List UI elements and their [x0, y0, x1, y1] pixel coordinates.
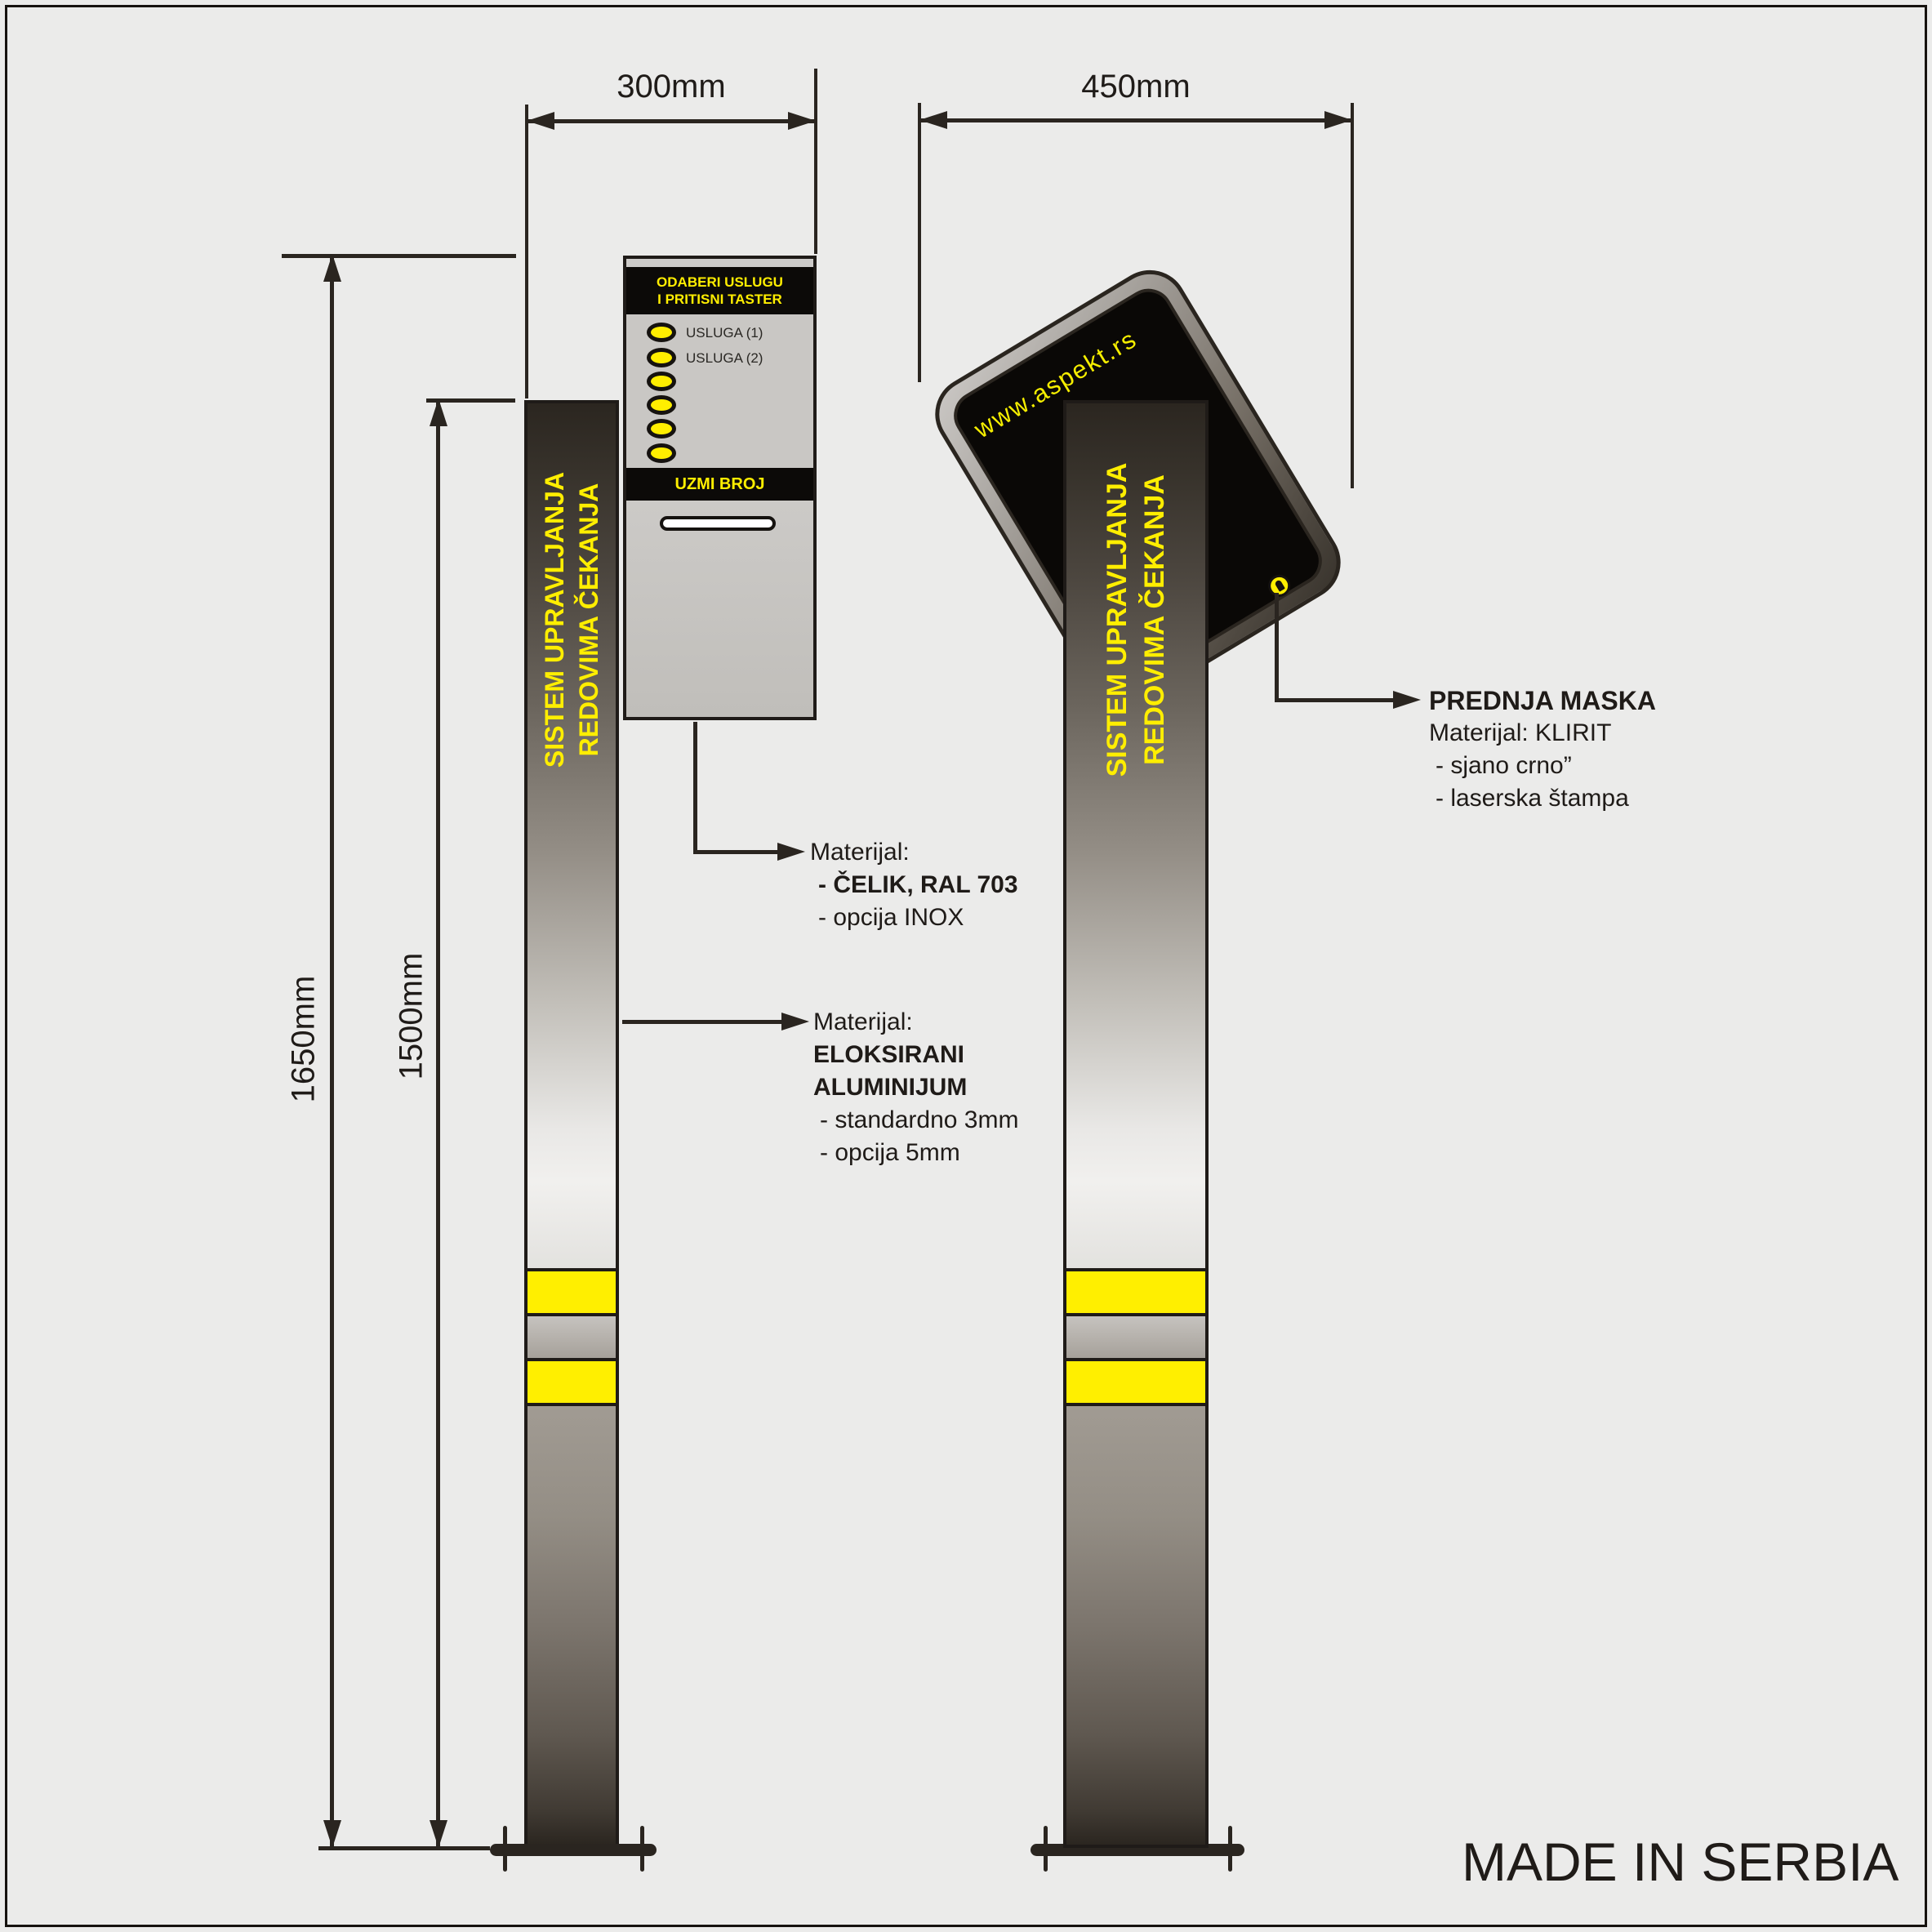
gray-band [528, 1316, 616, 1358]
pole-upper-section: SISTEM UPRAVLJANJA REDOVIMA ČEKANJA [528, 403, 616, 1268]
panel-button-area: USLUGA (1) USLUGA (2) [626, 314, 813, 468]
ground-extension-line [318, 1846, 490, 1850]
dim-450-label: 450mm [1054, 69, 1218, 105]
dim-450-extension-left [918, 103, 921, 382]
ticket-slot[interactable] [660, 516, 776, 531]
callout-steel-text: Materijal: - ČELIK, RAL 703 - opcija INO… [810, 836, 1018, 934]
anchor-bolt [1228, 1826, 1232, 1872]
callout-aluminium-line4: - opcija 5mm [813, 1137, 1018, 1169]
arrow-down-icon [430, 1820, 447, 1848]
pole-upper-section: SISTEM UPRAVLJANJA REDOVIMA ČEKANJA [1066, 403, 1205, 1268]
callout-mask-line1: Materijal: KLIRIT [1429, 717, 1656, 750]
arrow-right-icon [781, 1013, 809, 1031]
arrow-left-icon [527, 112, 554, 130]
service-button-3[interactable] [647, 372, 676, 391]
anchor-bolt [1044, 1826, 1048, 1872]
callout-mask-line3: - laserska štampa [1429, 782, 1656, 815]
yellow-band [528, 1268, 616, 1316]
callout-steel-line1: - ČELIK, RAL 703 [810, 869, 1018, 901]
pole-vertical-text: SISTEM UPRAVLJANJA REDOVIMA ČEKANJA [535, 456, 608, 783]
callout-mask-text: PREDNJA MASKA Materijal: KLIRIT - sjano … [1429, 684, 1656, 815]
technical-drawing-canvas: 1650mm 1500mm 300mm ODABERI USLUGU I PRI… [0, 0, 1932, 1932]
arrow-left-icon [919, 111, 947, 129]
callout-steel-title: Materijal: [810, 836, 1018, 869]
dim-1500-label: 1500mm [394, 935, 430, 1098]
callout-aluminium-line2: ALUMINIJUM [813, 1071, 1018, 1104]
made-in-serbia-text: MADE IN SERBIA [1462, 1831, 1899, 1893]
pole-text-line2: REDOVIMA ČEKANJA [1136, 474, 1173, 765]
arrow-right-icon [788, 112, 816, 130]
callout-aluminium-text: Materijal: ELOKSIRANI ALUMINIJUM - stand… [813, 1006, 1018, 1169]
pole-text-line2: REDOVIMA ČEKANJA [572, 483, 606, 757]
yellow-band [528, 1358, 616, 1406]
callout-mask-line-vertical [1275, 593, 1279, 702]
pole-lower-section [528, 1406, 616, 1845]
take-number-label: UZMI BROJ [675, 475, 765, 494]
arrow-right-icon [1324, 111, 1352, 129]
keyhole-notch [1274, 579, 1285, 591]
arrow-right-icon [777, 843, 805, 861]
panel-header-line2: I PRITISNI TASTER [626, 291, 813, 308]
ticket-panel: ODABERI USLUGU I PRITISNI TASTER USLUGA … [623, 256, 817, 720]
callout-steel-line-horizontal [693, 850, 781, 854]
pole-side-view: SISTEM UPRAVLJANJA REDOVIMA ČEKANJA [1063, 400, 1209, 1848]
panel-top-strip [626, 259, 813, 267]
service-button-1-label: USLUGA (1) [686, 325, 763, 341]
callout-steel-line2: - opcija INOX [810, 901, 1018, 934]
dim-300-extension-left [525, 105, 528, 398]
dim-450-line [919, 118, 1352, 122]
pole-lower-section [1066, 1406, 1205, 1845]
callout-aluminium-line3: - standardno 3mm [813, 1104, 1018, 1137]
anchor-bolt [640, 1826, 644, 1872]
dim-300-line [527, 119, 816, 123]
dim-300-label: 300mm [590, 69, 753, 105]
service-button-4[interactable] [647, 395, 676, 415]
dim-1500-extension-top [426, 398, 515, 403]
callout-aluminium-line [622, 1020, 786, 1024]
yellow-band [1066, 1268, 1205, 1316]
arrow-up-icon [323, 254, 341, 282]
dim-1650-line [330, 256, 334, 1848]
service-button-6[interactable] [647, 443, 676, 463]
dim-1650-extension-top [282, 254, 516, 258]
panel-header: ODABERI USLUGU I PRITISNI TASTER [626, 267, 813, 314]
base-plate [490, 1844, 657, 1856]
callout-steel-line-vertical [693, 722, 697, 854]
yellow-band [1066, 1358, 1205, 1406]
dim-300-extension-right [814, 69, 817, 254]
pole-front-view: SISTEM UPRAVLJANJA REDOVIMA ČEKANJA [524, 400, 619, 1848]
take-number-band: UZMI BROJ [626, 468, 813, 501]
service-button-2-label: USLUGA (2) [686, 350, 763, 367]
arrow-right-icon [1393, 691, 1421, 709]
pole-text-line1: SISTEM UPRAVLJANJA [1098, 463, 1136, 777]
callout-mask-line2: - sjano crno” [1429, 750, 1656, 782]
dim-1650-label: 1650mm [286, 958, 323, 1121]
arrow-up-icon [430, 398, 447, 426]
arrow-down-icon [323, 1820, 341, 1848]
callout-mask-line-horizontal [1275, 698, 1397, 702]
gray-band [1066, 1316, 1205, 1358]
pole-text-line1: SISTEM UPRAVLJANJA [537, 472, 572, 768]
service-button-2[interactable] [647, 348, 676, 367]
service-button-5[interactable] [647, 419, 676, 438]
dim-450-extension-right [1351, 103, 1354, 488]
service-button-1[interactable] [647, 323, 676, 342]
pole-vertical-text: SISTEM UPRAVLJANJA REDOVIMA ČEKANJA [1095, 452, 1177, 787]
dim-1500-line [436, 400, 440, 1848]
callout-aluminium-title: Materijal: [813, 1006, 1018, 1039]
panel-header-line1: ODABERI USLUGU [626, 274, 813, 291]
callout-aluminium-line1: ELOKSIRANI [813, 1039, 1018, 1071]
panel-dispenser-area [626, 501, 813, 717]
callout-mask-title: PREDNJA MASKA [1429, 684, 1656, 717]
anchor-bolt [503, 1826, 507, 1872]
